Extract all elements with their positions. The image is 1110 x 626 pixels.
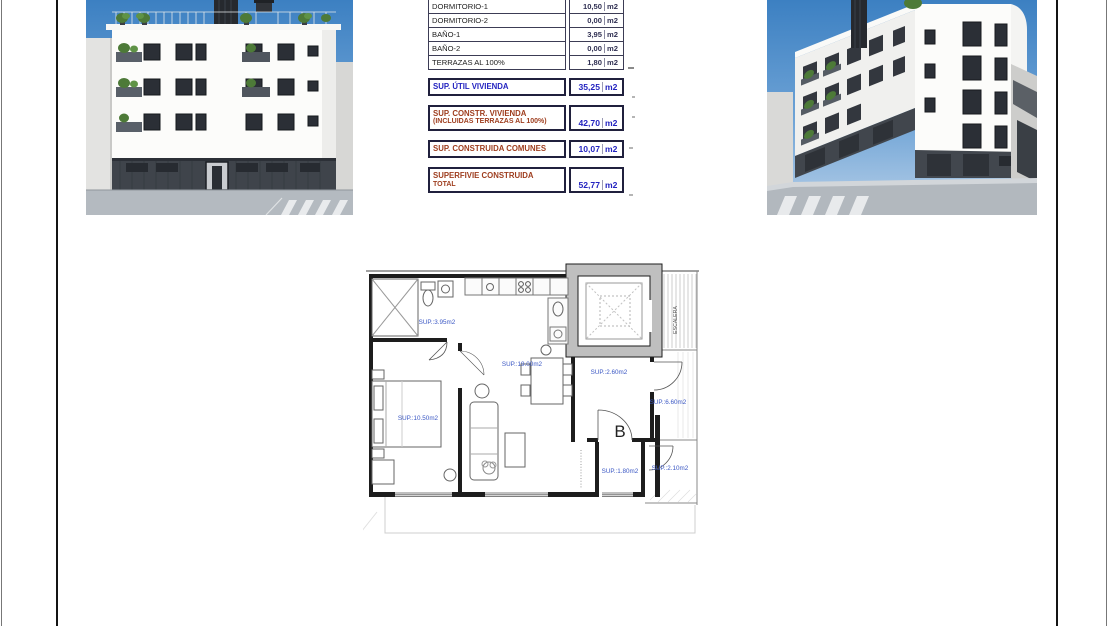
bathroom-area-label: SUP.:3.95m2 [419,319,456,326]
dresser [372,460,394,484]
building-render-corner [767,0,1037,215]
row-value: 0,00m2 [569,14,624,28]
neighbor-building-right [336,62,353,192]
building-front-svg [86,0,353,215]
row-value: 3,95m2 [569,28,624,42]
bedroom-furniture [372,370,456,484]
stair-tower [851,0,867,48]
ground-floor [915,150,1025,178]
facade-shade [322,28,336,162]
living-area-label: SUP.:19.00m2 [502,361,543,368]
table-row: DORMITORIO-1 10,50m2 [428,0,628,14]
chair [541,345,551,355]
summary-value: 35,25m2 [569,78,624,96]
table-row: TERRAZAS AL 100% 1,80m2 [428,56,628,70]
building-render-front [86,0,353,215]
bedroom-area-label: SUP.:10.50m2 [398,415,439,422]
chair [563,364,572,375]
row-value: 0,00m2 [569,42,624,56]
washer [438,281,453,297]
chair [521,385,530,396]
projection-outline [385,497,695,533]
row-value: 1,80m2 [569,56,624,70]
summary-label: SUPERFIVIE CONSTRUIDATOTAL [428,167,566,193]
tv-bench [505,433,525,467]
chair [444,469,456,481]
street [767,178,1037,215]
row-value: 10,50m2 [569,0,624,14]
table-row: DORMITORIO-2 0,00m2 [428,14,628,28]
summary-label: SUP. CONSTRUIDA COMUNES [428,140,566,158]
row-label: DORMITORIO-1 [428,0,566,14]
drawing-sheet: { "area_table": { "rows": [ {"label": "D… [0,0,1110,626]
sheet-border-left [56,0,58,626]
terrace-area-label: SUP.:6.60m2 [650,399,687,406]
stairs-label: ESCALERA [673,306,679,334]
summary-construida-comunes: SUP. CONSTRUIDA COMUNES 10,07m2 [428,140,628,158]
summary-value: 52,77m2 [569,167,624,193]
row-label: TERRAZAS AL 100% [428,56,566,70]
nightstand [372,370,384,379]
sheet-edge-right [1106,0,1107,626]
neighbor-building-right [1011,64,1037,190]
summary-util-vivienda: SUP. ÚTIL VIVIENDA 35,25m2 [428,78,628,96]
coffee-table [475,384,489,398]
hall-area-label: SUP.:2.60m2 [591,369,628,376]
nightstand [372,449,384,458]
floor-plan: SUP.:3.95m2 SUP.:19.00m2 SUP.:10.50m2 SU… [363,263,703,543]
tick-mark [632,116,635,118]
sheet-edge-left [1,0,2,626]
unit-letter: B [614,422,625,441]
building-corner-svg [767,0,1037,215]
kitchen-fixtures [465,278,568,344]
projection-line [363,512,377,538]
floor-plan-svg: SUP.:3.95m2 SUP.:19.00m2 SUP.:10.50m2 SU… [363,263,703,538]
neighbor-building-left [767,92,793,190]
chimney [254,0,274,12]
summary-constr-vivienda: SUP. CONSTR. VIVIENDA(INCLUIDAS TERRAZAS… [428,105,628,131]
summary-label: SUP. ÚTIL VIVIENDA [428,78,566,96]
street [86,190,353,215]
bathroom-fixtures [372,279,453,336]
balcony-area-label: SUP.:2.10m2 [652,465,689,472]
table-row: BAÑO-1 3,95m2 [428,28,628,42]
neighbor-building-left [86,38,112,192]
row-label: DORMITORIO-2 [428,14,566,28]
laundry-area-label: SUP.:1.80m2 [602,468,639,475]
toilet-tank [421,282,435,290]
chair [563,385,572,396]
elevator-shaft [566,264,662,357]
tick-mark [629,194,633,196]
table-row: BAÑO-2 0,00m2 [428,42,628,56]
tick-mark [629,147,633,149]
neighbor-edge [110,38,112,192]
summary-label: SUP. CONSTR. VIVIENDA(INCLUIDAS TERRAZAS… [428,105,566,131]
summary-value: 10,07m2 [569,140,624,158]
surface-area-table: DORMITORIO-1 10,50m2 DORMITORIO-2 0,00m2… [428,0,628,193]
toilet [423,290,433,306]
summary-value: 42,70m2 [569,105,624,131]
row-label: BAÑO-2 [428,42,566,56]
sheet-border-right [1056,0,1058,626]
tick-mark [632,96,635,98]
row-label: BAÑO-1 [428,28,566,42]
ground-floor [112,158,336,190]
stair-treads [664,274,696,348]
tick-mark [628,67,634,69]
summary-construida-total: SUPERFIVIE CONSTRUIDATOTAL 52,77m2 [428,167,628,193]
